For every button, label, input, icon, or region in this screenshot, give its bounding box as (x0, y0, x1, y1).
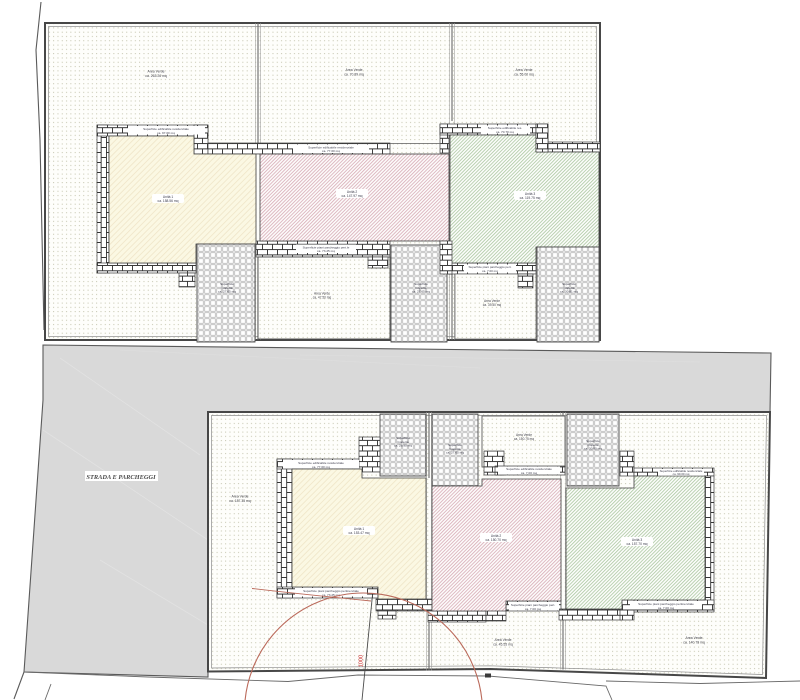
svg-text:ca. 147.97 mq: ca. 147.97 mq (342, 194, 363, 198)
svg-text:ca. 90.00 mq: ca. 90.00 mq (673, 472, 690, 476)
svg-text:ca. 263.26 mq: ca. 263.26 mq (145, 74, 167, 78)
svg-text:ca. 157.70 mq: ca. 157.70 mq (627, 542, 648, 546)
svg-text:ca. 30.81 mq: ca. 30.81 mq (560, 290, 578, 294)
svg-text:ca. 70.89 mq: ca. 70.89 mq (344, 73, 364, 77)
svg-text:ca. 7.00 mq: ca. 7.00 mq (482, 269, 498, 273)
svg-text:ca. 73.25 mq: ca. 73.25 mq (317, 249, 335, 253)
svg-text:ca. 7.00 mq: ca. 7.00 mq (525, 607, 541, 611)
svg-text:1000: 1000 (359, 655, 365, 667)
svg-text:ca. 7.00 mq: ca. 7.00 mq (521, 471, 537, 475)
svg-text:ca. 70.70 mq: ca. 70.70 mq (496, 130, 514, 134)
svg-text:ca. 119.75 mq: ca. 119.75 mq (520, 196, 541, 200)
svg-text:STRADA E PARCHEGGI: STRADA E PARCHEGGI (86, 474, 156, 481)
svg-text:ca. 30.90 mq: ca. 30.90 mq (584, 447, 602, 451)
svg-text:ca. 7.00 mq: ca. 7.00 mq (658, 606, 674, 610)
svg-text:ca. 97.00 mq: ca. 97.00 mq (157, 131, 175, 135)
svg-text:ca. 55.00 mq: ca. 55.00 mq (514, 73, 534, 77)
svg-text:ca. 26.90 mq: ca. 26.90 mq (394, 444, 412, 448)
svg-text:ca. 153.47 mq: ca. 153.47 mq (349, 531, 370, 535)
svg-text:ca. 77.00 mq: ca. 77.00 mq (312, 465, 330, 469)
svg-text:ca. 27.65 mq: ca. 27.65 mq (412, 290, 430, 294)
svg-text:ca. 187.35 mq: ca. 187.35 mq (229, 499, 251, 503)
svg-text:ca. 140.78 mq: ca. 140.78 mq (683, 640, 705, 644)
svg-text:ca. 150.75 mq: ca. 150.75 mq (514, 437, 534, 441)
svg-text:ca. 27.65 mq: ca. 27.65 mq (218, 290, 236, 294)
svg-text:ca. 150.70 mq: ca. 150.70 mq (486, 538, 507, 542)
svg-text:ca. 45.55 mq: ca. 45.55 mq (493, 642, 513, 646)
svg-text:ca. 77.00 mq: ca. 77.00 mq (322, 149, 340, 153)
svg-text:ca. 27.65 mq: ca. 27.65 mq (446, 451, 464, 455)
svg-text:ca. 47.50 mq: ca. 47.50 mq (313, 296, 332, 300)
svg-text:ca. 39.50 mq: ca. 39.50 mq (483, 303, 502, 307)
svg-text:ca. 158.56 mq: ca. 158.56 mq (158, 199, 179, 203)
